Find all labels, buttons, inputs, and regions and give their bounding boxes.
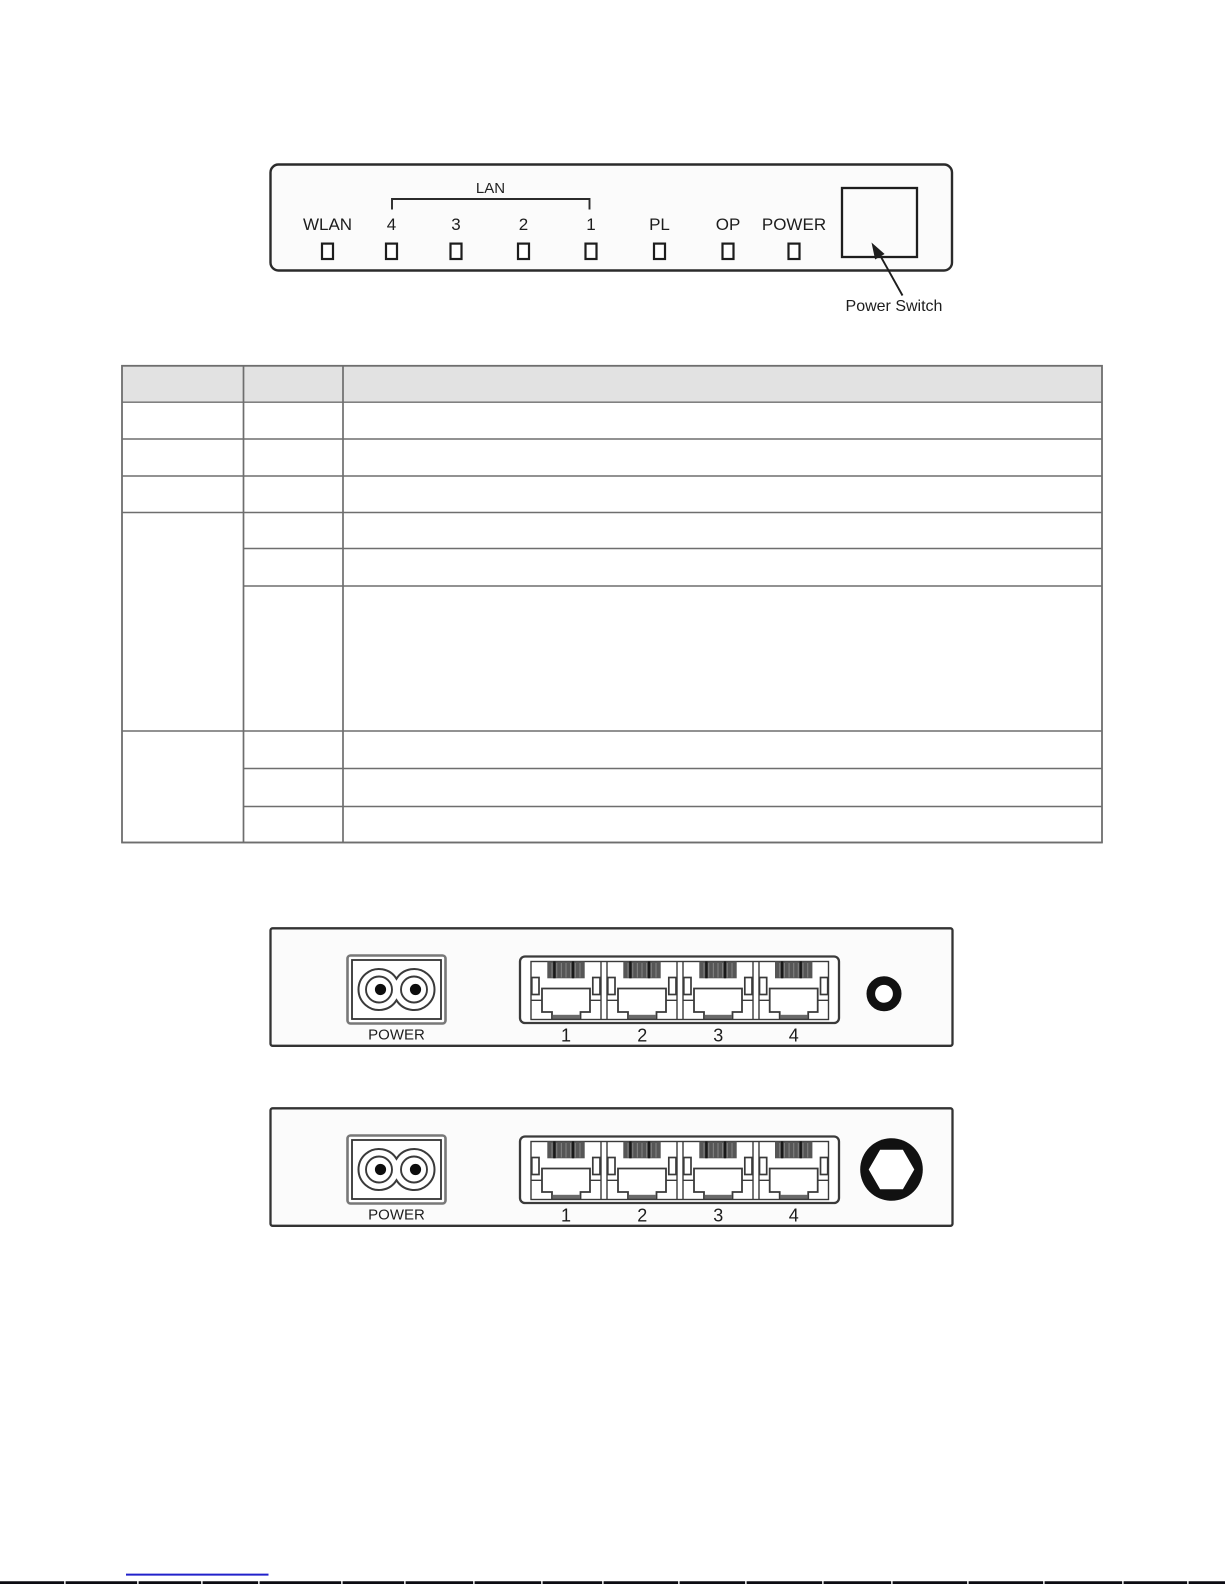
svg-text:2: 2 — [637, 1206, 647, 1226]
svg-text:PL: PL — [649, 215, 670, 234]
svg-text:4: 4 — [789, 1206, 799, 1226]
svg-text:3: 3 — [713, 1206, 723, 1226]
svg-text:2: 2 — [637, 1026, 647, 1046]
svg-text:4: 4 — [789, 1026, 799, 1046]
svg-text:1: 1 — [561, 1026, 571, 1046]
svg-text:WLAN: WLAN — [303, 215, 352, 234]
svg-text:POWER: POWER — [762, 215, 826, 234]
svg-text:1: 1 — [586, 215, 595, 234]
svg-text:LAN: LAN — [476, 180, 505, 197]
svg-text:3: 3 — [713, 1026, 723, 1046]
svg-text:Power Switch: Power Switch — [846, 298, 943, 315]
svg-text:2: 2 — [519, 215, 528, 234]
svg-text:POWER: POWER — [368, 1207, 425, 1224]
svg-text:1: 1 — [561, 1206, 571, 1226]
svg-text:POWER: POWER — [368, 1027, 425, 1044]
svg-text:4: 4 — [387, 215, 396, 234]
svg-text:3: 3 — [451, 215, 460, 234]
svg-text:OP: OP — [716, 215, 741, 234]
